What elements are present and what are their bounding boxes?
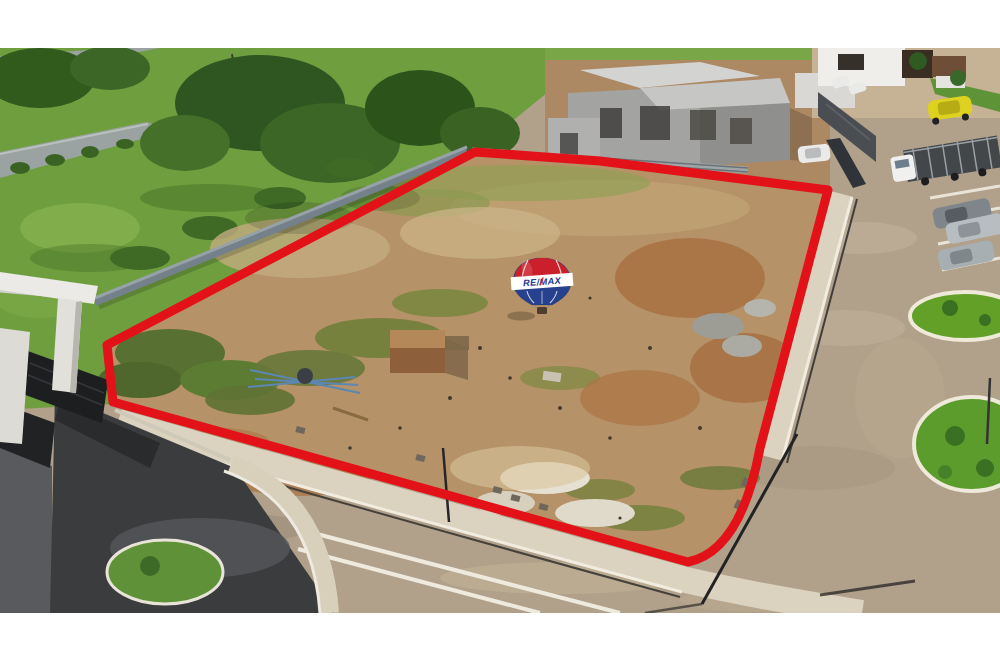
palm-tree [909,52,927,70]
grass-island [107,540,223,604]
screenshot-canvas: RE/MAX [0,0,1000,667]
balloon-shadow [507,312,535,321]
white-car-construction [797,143,831,163]
balloon-basket [537,307,547,314]
gravel-pile [692,313,744,339]
listing-photo: RE/MAX [0,48,1000,613]
brick-pile [390,330,469,380]
